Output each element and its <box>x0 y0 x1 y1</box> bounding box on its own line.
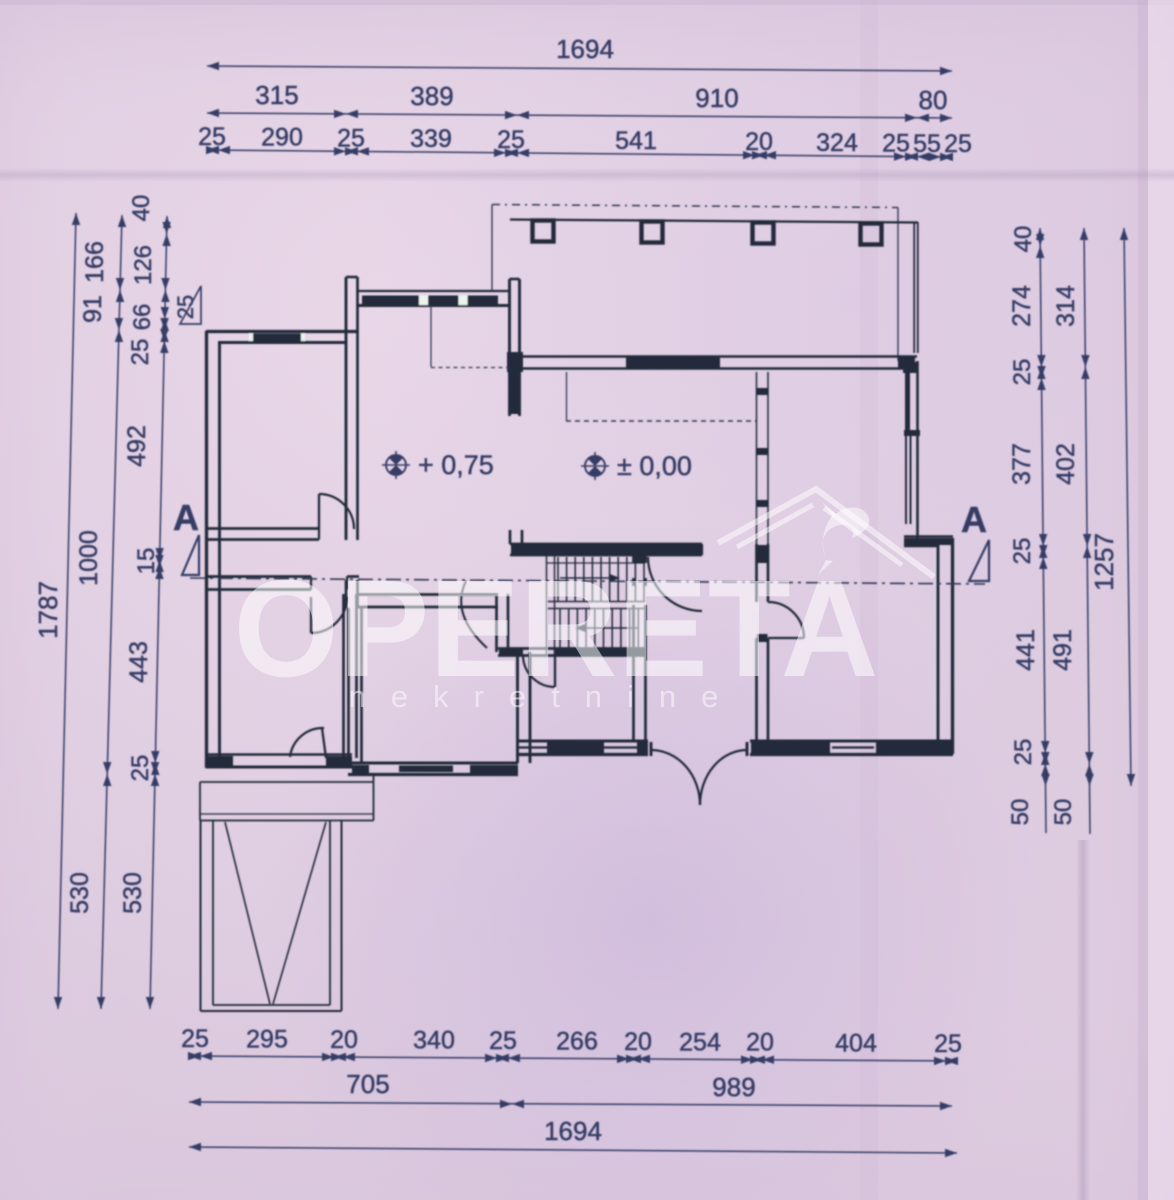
svg-text:25: 25 <box>198 123 226 151</box>
svg-text:389: 389 <box>410 81 453 111</box>
svg-text:20: 20 <box>330 1026 358 1054</box>
svg-text:530: 530 <box>66 872 94 914</box>
svg-text:25: 25 <box>489 1027 517 1055</box>
svg-text:1000: 1000 <box>75 530 103 586</box>
svg-text:A: A <box>173 497 199 538</box>
svg-text:+ 0,75: + 0,75 <box>418 450 494 480</box>
svg-text:25: 25 <box>181 1025 209 1053</box>
svg-text:1694: 1694 <box>544 1116 602 1146</box>
svg-text:705: 705 <box>346 1069 389 1099</box>
svg-text:nekretnine: nekretnine <box>349 679 744 714</box>
svg-text:910: 910 <box>695 83 738 113</box>
svg-text:541: 541 <box>615 127 657 155</box>
svg-text:15: 15 <box>133 548 160 575</box>
svg-text:443: 443 <box>125 641 153 683</box>
svg-text:254: 254 <box>679 1028 721 1056</box>
svg-text:290: 290 <box>261 124 303 152</box>
svg-text:340: 340 <box>413 1027 455 1055</box>
svg-text:324: 324 <box>816 129 858 157</box>
svg-text:404: 404 <box>835 1029 877 1057</box>
svg-text:377: 377 <box>1008 443 1036 485</box>
svg-text:1694: 1694 <box>556 34 614 64</box>
svg-text:274: 274 <box>1008 285 1036 327</box>
svg-text:25: 25 <box>173 295 198 319</box>
svg-text:20: 20 <box>745 128 773 156</box>
svg-text:25: 25 <box>934 1030 962 1058</box>
svg-text:25: 25 <box>882 129 910 157</box>
svg-text:491: 491 <box>1049 629 1077 671</box>
svg-text:25: 25 <box>1009 538 1036 565</box>
svg-text:315: 315 <box>255 80 298 110</box>
svg-text:295: 295 <box>246 1026 288 1054</box>
svg-text:441: 441 <box>1012 629 1040 671</box>
svg-text:126: 126 <box>130 245 157 285</box>
svg-text:A: A <box>961 499 987 540</box>
svg-text:55: 55 <box>913 130 941 158</box>
svg-text:1257: 1257 <box>1089 533 1119 591</box>
svg-text:66: 66 <box>129 304 156 331</box>
svg-text:402: 402 <box>1052 443 1080 485</box>
svg-text:314: 314 <box>1052 285 1080 327</box>
svg-text:40: 40 <box>128 195 155 222</box>
svg-text:50: 50 <box>1007 799 1034 826</box>
svg-text:25: 25 <box>1010 739 1037 766</box>
svg-text:25: 25 <box>337 124 365 152</box>
svg-text:989: 989 <box>712 1072 755 1102</box>
svg-text:266: 266 <box>556 1028 598 1056</box>
svg-text:492: 492 <box>123 425 151 467</box>
svg-text:530: 530 <box>119 872 147 914</box>
svg-text:40: 40 <box>1010 226 1037 253</box>
svg-text:50: 50 <box>1050 799 1077 826</box>
svg-text:80: 80 <box>919 85 948 115</box>
svg-text:25: 25 <box>1009 359 1036 386</box>
svg-text:1787: 1787 <box>33 581 63 639</box>
svg-text:± 0,00: ± 0,00 <box>617 451 692 481</box>
svg-text:339: 339 <box>410 125 452 153</box>
svg-text:20: 20 <box>624 1028 652 1056</box>
svg-text:25: 25 <box>944 130 972 158</box>
svg-text:25: 25 <box>127 339 154 366</box>
svg-text:25: 25 <box>127 755 154 782</box>
svg-text:166: 166 <box>81 241 109 283</box>
svg-text:20: 20 <box>746 1029 774 1057</box>
svg-text:25: 25 <box>497 126 525 154</box>
svg-text:91: 91 <box>79 295 107 323</box>
